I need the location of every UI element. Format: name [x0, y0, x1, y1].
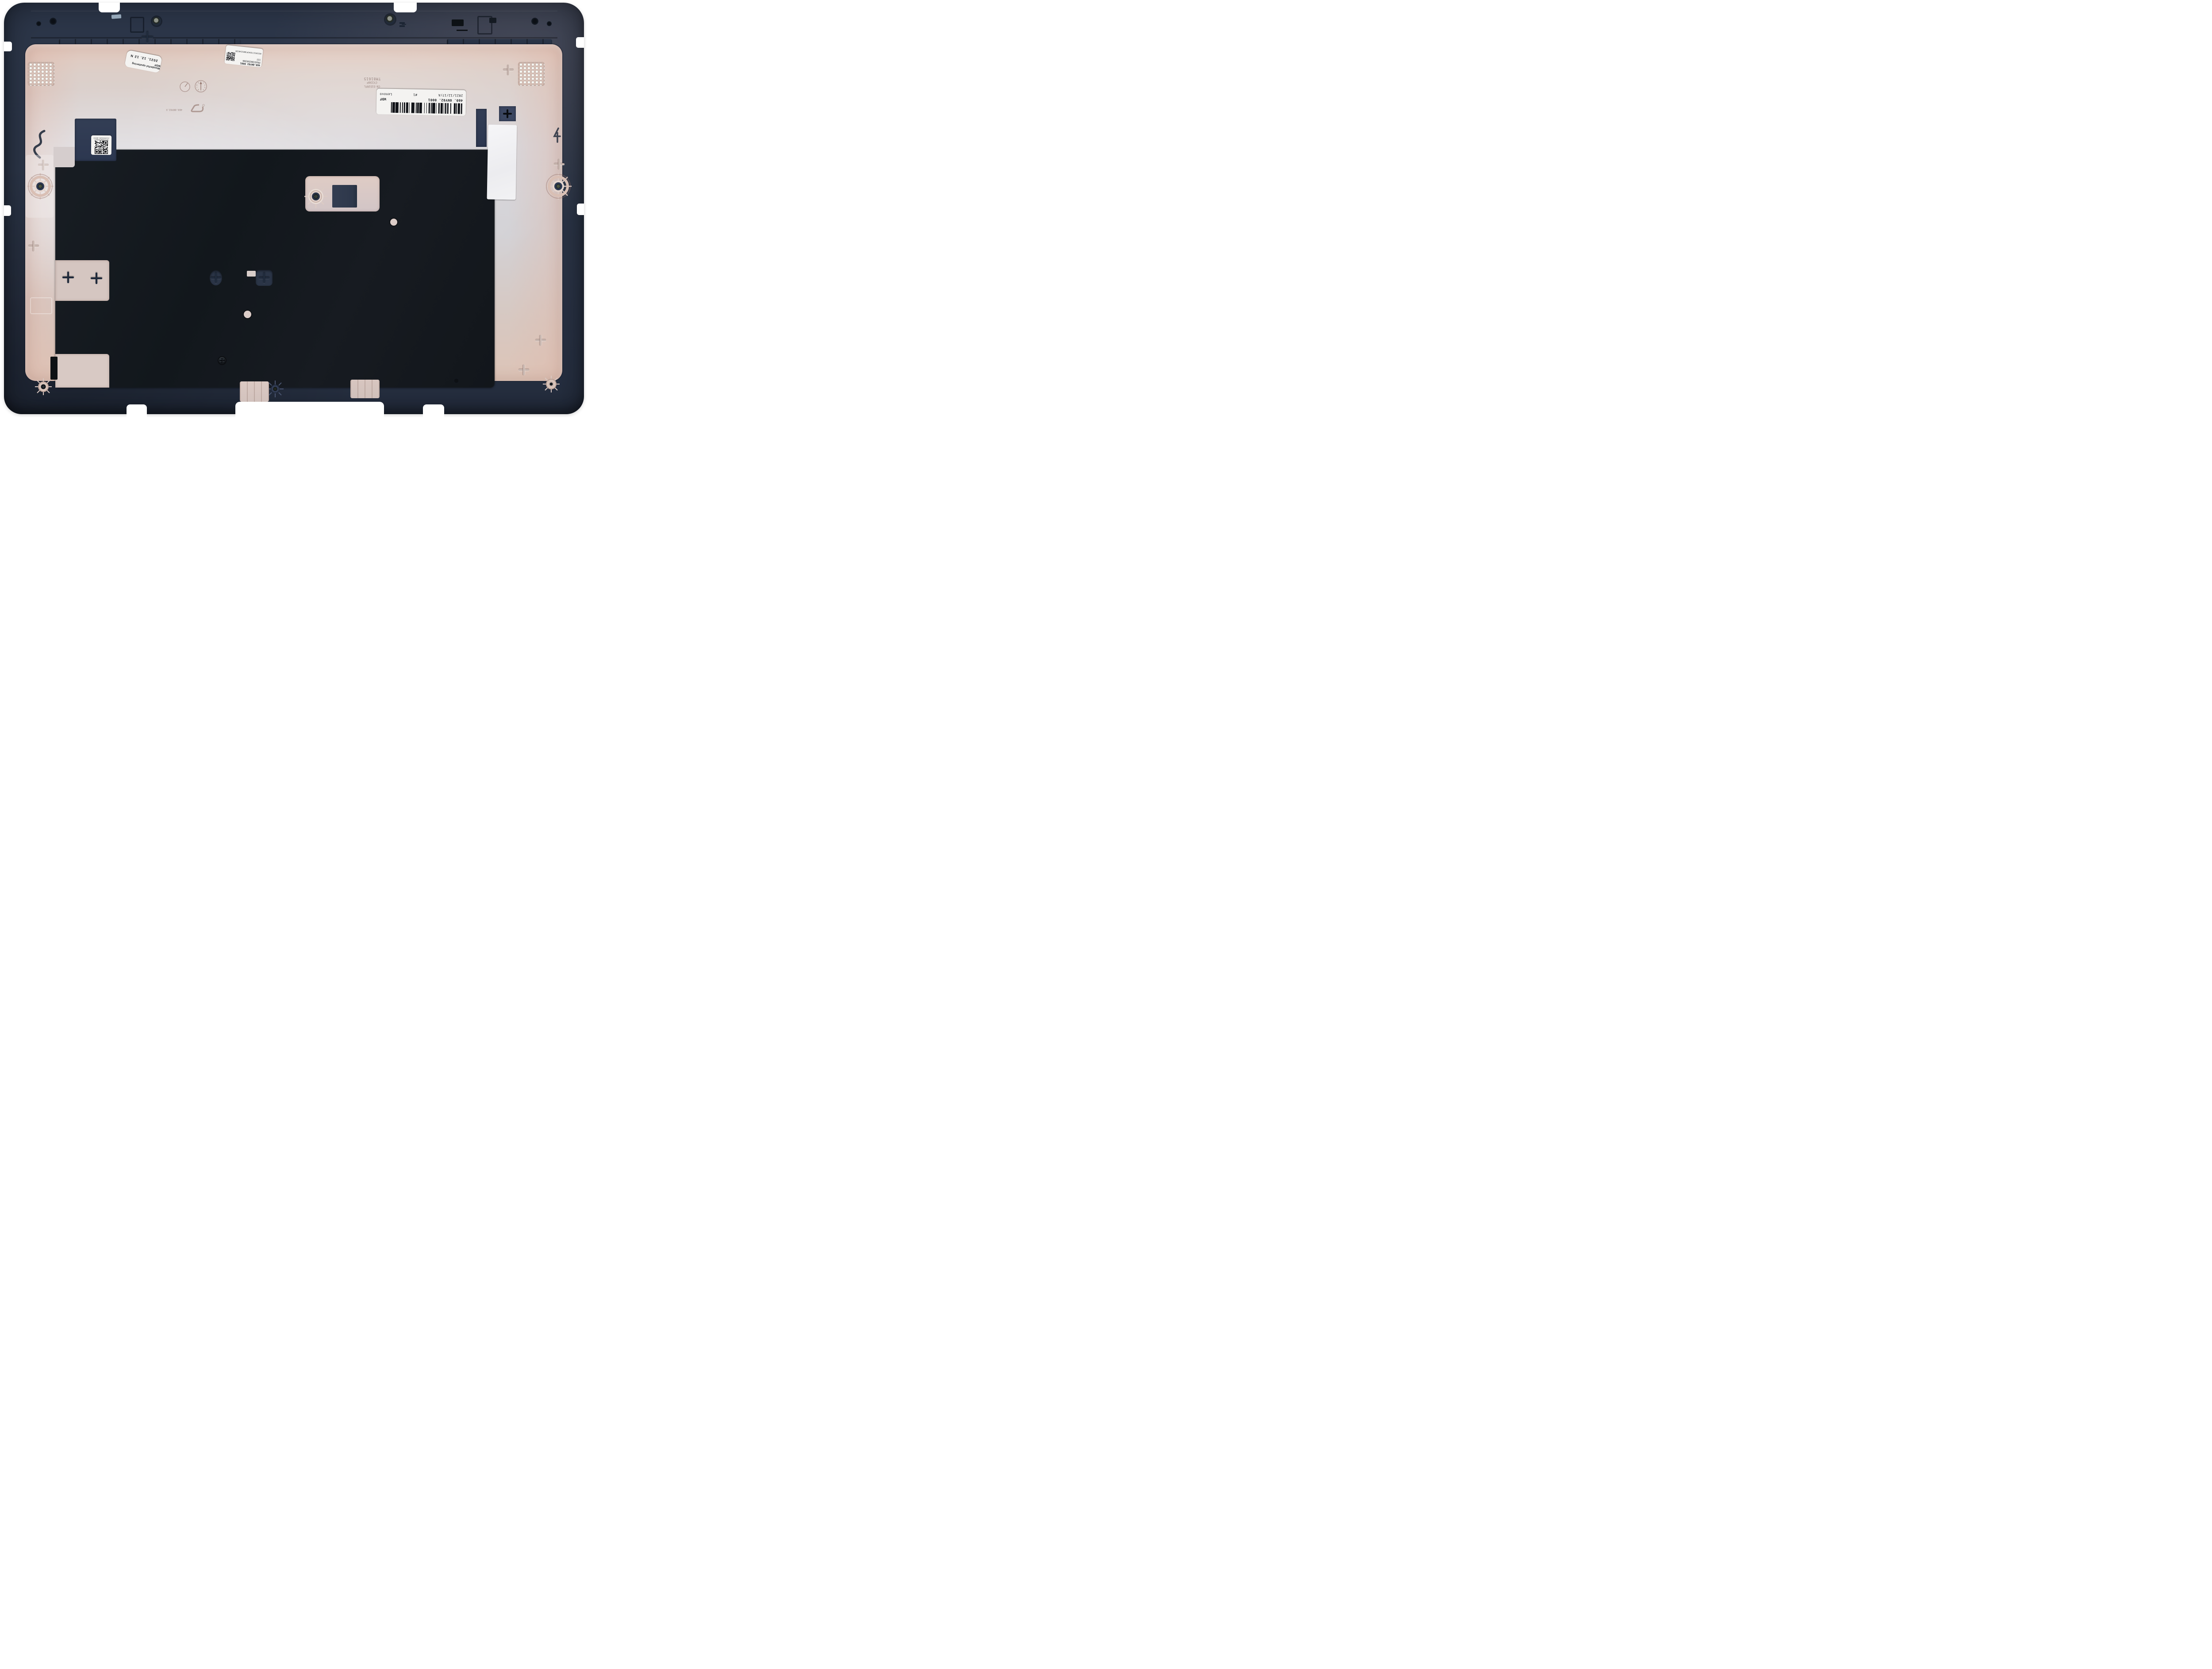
main-date-code: 2021/12/17/A [438, 93, 463, 98]
svg-text:9: 9 [198, 82, 199, 84]
emboss-cross-6 [535, 335, 546, 346]
svg-text:4: 4 [203, 89, 204, 91]
main-count: #1 [413, 93, 417, 97]
camera-mount-boss [303, 184, 328, 209]
top-rim-groove [31, 37, 557, 38]
left-edge-notch-1 [4, 42, 12, 51]
sheet-screw [219, 357, 226, 364]
mold-id-text: CN-5151RFL CY230P TM81615 [356, 64, 388, 88]
emi-foam-pad [332, 185, 357, 208]
photo-stage: 0123456789 CN-5151RFL CY230P TM81615 460… [0, 0, 588, 417]
emboss-cross-7 [554, 159, 565, 169]
emboss-cross-5 [518, 365, 529, 375]
graphite-mylar-sheet [55, 150, 495, 388]
boss-cross-left-2 [91, 273, 102, 284]
boss-cross-left-1 [62, 272, 74, 283]
mold-id-line1: TM81615 [356, 77, 388, 81]
main-plant-code: WDF [380, 97, 386, 101]
bottom-notch-left [127, 404, 147, 417]
hinge-boss-left [152, 17, 161, 26]
sheet-bl-cutout [55, 354, 109, 388]
svg-text:3: 3 [204, 87, 205, 88]
mold-outline-rect [30, 297, 52, 314]
qr-label-line2: 21120101A01-0633Z [93, 137, 109, 139]
qr-code [95, 141, 108, 154]
top-hinge-notch-left [99, 3, 120, 12]
boss-cross-oval [211, 273, 221, 283]
speaker-grille-left [28, 62, 54, 86]
sheet-corner-shield-patch [54, 147, 75, 167]
right-edge-notch-2 [577, 204, 584, 215]
bottom-window-left [240, 381, 269, 402]
e-clip [399, 22, 405, 24]
top-hinge-notch-right [394, 3, 417, 12]
corner-screw-post-tr1 [531, 18, 538, 25]
svg-text:5: 5 [200, 90, 201, 92]
svg-text:8: 8 [196, 84, 197, 86]
svg-text:2: 2 [204, 84, 205, 86]
qr-label-line1: MFC4340NY020021 [94, 139, 108, 141]
svg-text:7: 7 [196, 87, 197, 88]
bottom-dark-post [453, 378, 459, 384]
bottom-notch-right [423, 404, 444, 417]
blank-white-label [487, 124, 517, 200]
main-brand: Lenovo [380, 92, 392, 96]
emboss-cross-2 [28, 241, 39, 251]
main-part-label: 460. 0NY02. 0001 WDF 2021/12/17/A #1 Len… [376, 88, 466, 116]
sheet-hole-2 [244, 311, 251, 318]
mold-logo-emboss [189, 104, 205, 114]
fru-barcode-label: 460.0NY02 0001 FRU5CB0Z69366 112 8SSCB1C… [224, 45, 263, 68]
mold-id-line2: CY230P [356, 81, 388, 84]
main-part-number: 460. 0NY02. 0001 [428, 98, 463, 102]
fru-qr-code [226, 52, 235, 61]
bottom-recess [235, 402, 384, 417]
left-edge-notch-2 [4, 205, 11, 216]
boss-cross-right-square [503, 109, 512, 118]
barcode [380, 102, 462, 114]
rim-cross-boss [142, 31, 153, 43]
mold-part-number-emboss: 460.0NY02.X [154, 108, 182, 111]
sheet-slot-window [247, 271, 256, 277]
hinge-bracket-dark [452, 19, 464, 26]
qr-serial-label: MFC4340NY020021 21120101A01-0633Z [91, 135, 111, 155]
corner-screw-boss-br [542, 375, 560, 393]
svg-text:6: 6 [198, 89, 199, 91]
corner-screw-post-tl1 [50, 18, 57, 25]
corner-screw-post-tl2 [36, 21, 41, 26]
blue-tape-shred [111, 14, 122, 19]
speaker-grille-right [518, 62, 545, 86]
right-edge-notch-1 [576, 37, 584, 48]
hinge-screw-boss-right [541, 169, 575, 203]
boss-cross-notch [259, 273, 269, 283]
hinge-screw-boss-left [23, 169, 57, 203]
corner-screw-post-tr2 [547, 21, 552, 26]
bottom-center-boss [266, 380, 284, 398]
antenna-bar-dark [50, 357, 58, 380]
mold-mark-right [552, 127, 562, 143]
corner-screw-boss-bl [35, 378, 52, 396]
mold-date-dials: 0123456789 [177, 79, 209, 95]
sheet-hole-1 [390, 219, 397, 226]
bottom-window-right [350, 380, 380, 398]
dark-clip [489, 18, 496, 23]
mold-id-line3: CN-5151RFL [356, 85, 388, 88]
right-tape-strip [476, 109, 487, 147]
rim-cutout-frame-left [130, 17, 144, 33]
emboss-cross-8 [503, 65, 514, 75]
svg-text:1: 1 [203, 82, 204, 84]
svg-text:0: 0 [200, 81, 201, 83]
hinge-boss-right [385, 15, 395, 24]
